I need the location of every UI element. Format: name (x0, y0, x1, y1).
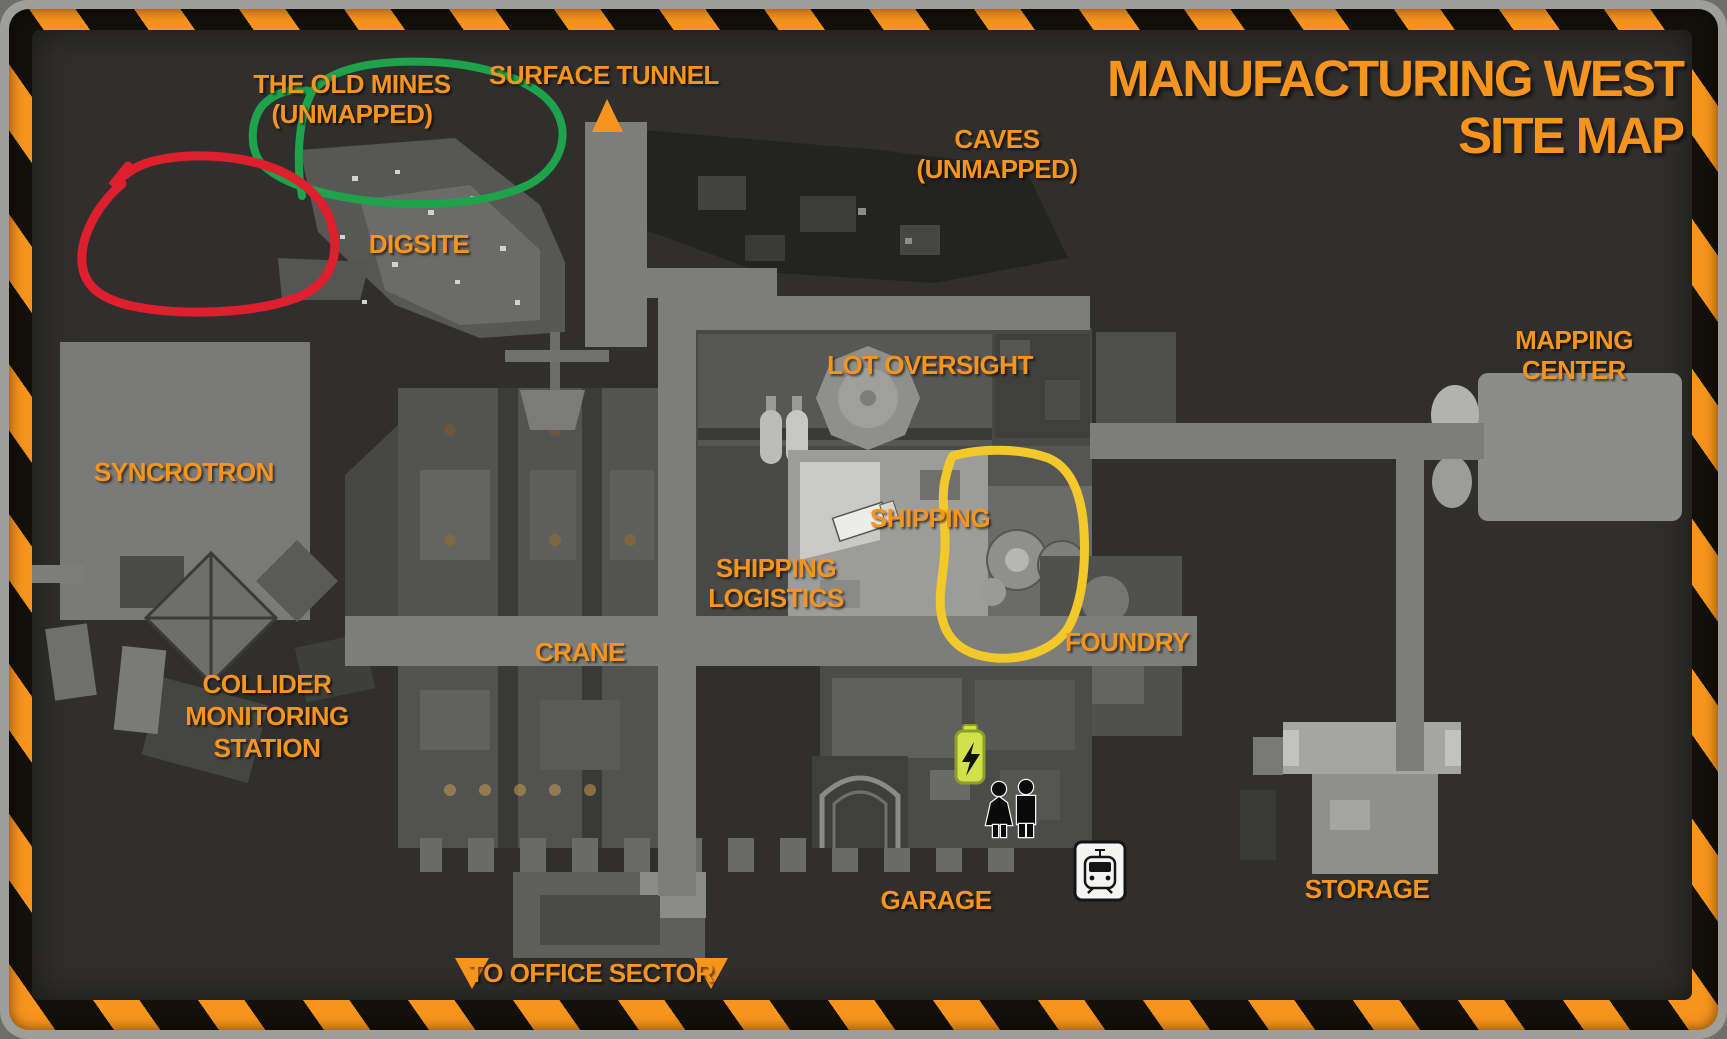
garage-building (812, 666, 1092, 848)
label-storage: STORAGE (1305, 874, 1430, 904)
map-title: MANUFACTURING WEST SITE MAP (1107, 50, 1683, 164)
label-lot-oversight: LOT OVERSIGHT (827, 350, 1033, 380)
label-garage: GARAGE (880, 885, 991, 915)
label-old-mines: THE OLD MINES (UNMAPPED) (253, 69, 450, 129)
label-shipping-logistics: SHIPPING LOGISTICS (708, 553, 844, 613)
map-title-line1: MANUFACTURING WEST (1107, 50, 1683, 107)
man-icon (1017, 780, 1035, 837)
train-station-icon (1075, 842, 1125, 900)
label-mapping-center: MAPPING CENTER (1498, 325, 1651, 385)
label-caves: CAVES (UNMAPPED) (916, 124, 1077, 184)
label-foundry: FOUNDRY (1065, 627, 1189, 657)
right-annex (1096, 332, 1176, 434)
label-to-office-sector: TO OFFICE SECTOR (468, 958, 713, 988)
site-map-image: MANUFACTURING WEST SITE MAP SURFACE TUNN… (0, 0, 1727, 1039)
label-collider-monitoring-station: COLLIDER MONITORING STATION (185, 668, 349, 764)
label-crane: CRANE (535, 637, 625, 667)
storage-building (1240, 722, 1461, 874)
label-syncrotron: SYNCROTRON (94, 457, 274, 487)
up-arrow-icon (592, 99, 623, 132)
map-title-line2: SITE MAP (1107, 107, 1683, 164)
surface-tunnel-corridor (585, 122, 647, 347)
battery-charging-icon (956, 725, 984, 783)
label-digsite: DIGSITE (369, 229, 470, 259)
label-surface-tunnel: SURFACE TUNNEL (489, 60, 719, 90)
label-shipping: SHIPPING (870, 503, 990, 533)
